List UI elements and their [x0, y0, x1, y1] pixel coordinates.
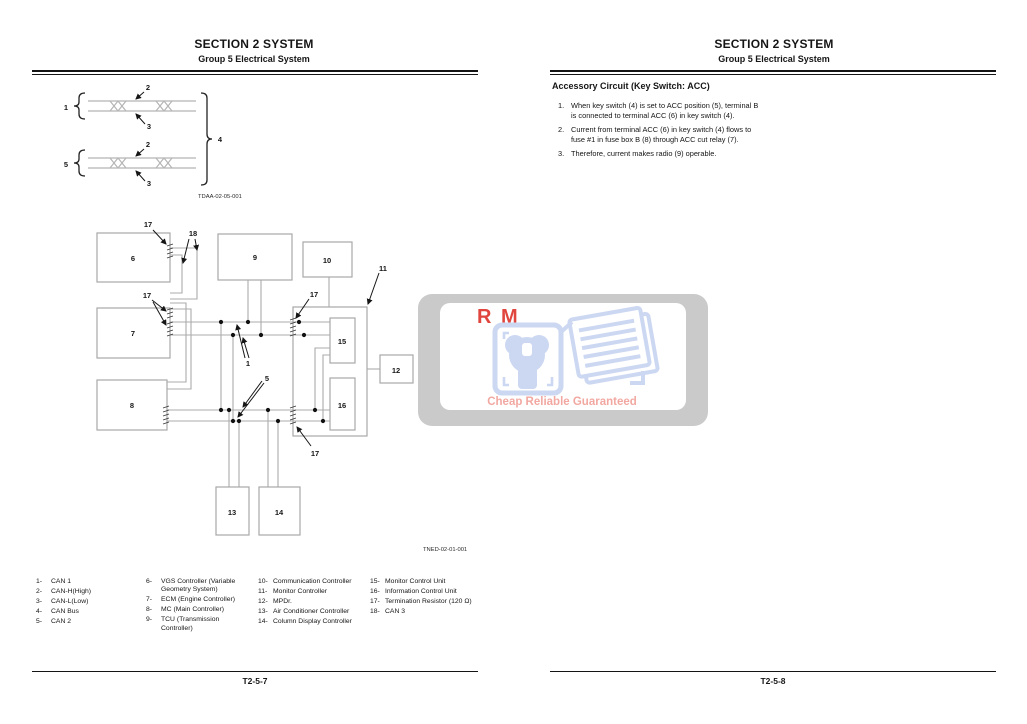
box-label-10: 10	[323, 256, 331, 265]
callout-4: 4	[218, 135, 223, 144]
legend-col-4: 15-Monitor Control Unit 16-Information C…	[370, 578, 478, 618]
legend-label: Communication Controller	[273, 578, 364, 586]
legend-label: CAN-L(Low)	[51, 598, 138, 606]
list-text: Current from terminal ACC (6) in key swi…	[571, 125, 763, 144]
legend-label: CAN 3	[385, 608, 478, 616]
brace-icon	[201, 93, 212, 185]
legend-item: 8-MC (Main Controller)	[146, 606, 252, 614]
legend-num: 10-	[258, 578, 273, 586]
legend-item: 18-CAN 3	[370, 608, 478, 616]
figure-code: TNED-02-01-001	[423, 547, 467, 553]
legend-num: 17-	[370, 598, 385, 606]
legend-num: 9-	[146, 616, 161, 633]
callout-1: 1	[246, 359, 250, 368]
legend-label: Monitor Control Unit	[385, 578, 478, 586]
footer-rule	[32, 671, 478, 672]
legend-num: 12-	[258, 598, 273, 606]
callout-1: 1	[64, 103, 68, 112]
twisted-pair-1	[88, 101, 196, 111]
legend-label: TCU (Transmission Controller)	[161, 616, 252, 633]
legend-item: 12-MPDr.	[258, 598, 364, 606]
callout-17: 17	[310, 290, 318, 299]
legend-item: 1-CAN 1	[36, 578, 138, 586]
watermark: R M	[418, 294, 708, 426]
figure-code: TDAA-02-05-001	[198, 194, 242, 200]
legend-item: 7-ECM (Engine Controller)	[146, 596, 252, 604]
legend-label: CAN-H(High)	[51, 588, 138, 596]
callout-11: 11	[379, 264, 387, 273]
legend-num: 14-	[258, 618, 273, 626]
header-rule	[550, 70, 996, 75]
legend-num: 8-	[146, 606, 161, 614]
callout-2: 2	[146, 83, 150, 92]
watermark-panel: R M	[440, 303, 686, 410]
group-subtitle: Group 5 Electrical System	[30, 54, 478, 64]
legend-label: ECM (Engine Controller)	[161, 596, 252, 604]
callout-17: 17	[143, 291, 151, 300]
legend-col-2: 6-VGS Controller (Variable Geometry Syst…	[146, 578, 252, 634]
legend-num: 3-	[36, 598, 51, 606]
legend-num: 7-	[146, 596, 161, 604]
legend-num: 13-	[258, 608, 273, 616]
legend-num: 16-	[370, 588, 385, 596]
legend-num: 4-	[36, 608, 51, 616]
brace-icon	[74, 93, 85, 119]
legend-item: 2-CAN-H(High)	[36, 588, 138, 596]
legend-label: CAN 1	[51, 578, 138, 586]
watermark-tagline: Cheap Reliable Guaranteed	[487, 396, 637, 408]
callout-3: 3	[147, 122, 151, 131]
box-label-16: 16	[338, 401, 346, 410]
left-page-header: SECTION 2 SYSTEM Group 5 Electrical Syst…	[30, 37, 478, 64]
list-number: 3.	[558, 149, 571, 159]
callout-2: 2	[146, 140, 150, 149]
legend-label: VGS Controller (Variable Geometry System…	[161, 578, 252, 595]
legend-item: 14-Column Display Controller	[258, 618, 364, 626]
watermark-brand-r: R	[477, 306, 492, 328]
legend-num: 5-	[36, 618, 51, 626]
legend-item: 4-CAN Bus	[36, 608, 138, 616]
twisted-pair-figure: 1 2 3 5 2 3 4 TDAA-02-05-001	[40, 80, 290, 205]
legend-item: 17-Termination Resistor (120 Ω)	[370, 598, 478, 606]
list-text: Therefore, current makes radio (9) opera…	[571, 149, 763, 159]
callout-5: 5	[64, 160, 68, 169]
right-page-header: SECTION 2 SYSTEM Group 5 Electrical Syst…	[550, 37, 998, 64]
box-label-7: 7	[131, 329, 135, 338]
section-title: SECTION 2 SYSTEM	[30, 37, 478, 51]
callout-5: 5	[265, 374, 269, 383]
legend-item: 13-Air Conditioner Controller	[258, 608, 364, 616]
legend-num: 2-	[36, 588, 51, 596]
box-label-9: 9	[253, 253, 257, 262]
callout-17: 17	[144, 220, 152, 229]
legend-item: 9-TCU (Transmission Controller)	[146, 616, 252, 633]
legend-label: Air Conditioner Controller	[273, 608, 364, 616]
callout-17: 17	[311, 449, 319, 458]
list-item: 3. Therefore, current makes radio (9) op…	[558, 149, 763, 159]
box-label-13: 13	[228, 508, 236, 517]
twisted-pair-2	[88, 158, 196, 168]
legend-col-1: 1-CAN 1 2-CAN-H(High) 3-CAN-L(Low) 4-CAN…	[36, 578, 138, 628]
book-icon	[560, 307, 658, 383]
box-label-6: 6	[131, 254, 135, 263]
legend-num: 15-	[370, 578, 385, 586]
legend-item: 6-VGS Controller (Variable Geometry Syst…	[146, 578, 252, 595]
brace-icon	[74, 150, 85, 176]
legend-label: Column Display Controller	[273, 618, 364, 626]
legend-item: 11-Monitor Controller	[258, 588, 364, 596]
legend-label: Information Control Unit	[385, 588, 478, 596]
list-item: 1. When key switch (4) is set to ACC pos…	[558, 101, 763, 120]
legend-label: CAN 2	[51, 618, 138, 626]
callout-3: 3	[147, 179, 151, 188]
legend-num: 6-	[146, 578, 161, 595]
legend-label: MPDr.	[273, 598, 364, 606]
box-label-15: 15	[338, 337, 346, 346]
legend-item: 3-CAN-L(Low)	[36, 598, 138, 606]
legend-label: Termination Resistor (120 Ω)	[385, 598, 478, 606]
wrench-icon	[495, 325, 561, 393]
legend-col-3: 10-Communication Controller 11-Monitor C…	[258, 578, 364, 628]
manual-spread: SECTION 2 SYSTEM Group 5 Electrical Syst…	[0, 0, 1027, 724]
instruction-list: 1. When key switch (4) is set to ACC pos…	[558, 101, 763, 164]
legend-item: 15-Monitor Control Unit	[370, 578, 478, 586]
list-text: When key switch (4) is set to ACC positi…	[571, 101, 763, 120]
list-number: 2.	[558, 125, 571, 144]
box-label-12: 12	[392, 366, 400, 375]
header-rule	[32, 70, 478, 75]
section-title: SECTION 2 SYSTEM	[550, 37, 998, 51]
footer-rule	[550, 671, 996, 672]
list-item: 2. Current from terminal ACC (6) in key …	[558, 125, 763, 144]
accessory-heading: Accessory Circuit (Key Switch: ACC)	[552, 81, 710, 91]
box-label-8: 8	[130, 401, 134, 410]
legend-item: 10-Communication Controller	[258, 578, 364, 586]
callout-18: 18	[189, 229, 197, 238]
group-subtitle: Group 5 Electrical System	[550, 54, 998, 64]
page-number: T2-5-8	[550, 676, 996, 686]
box-label-14: 14	[275, 508, 284, 517]
legend-label: MC (Main Controller)	[161, 606, 252, 614]
legend-label: Monitor Controller	[273, 588, 364, 596]
legend-num: 11-	[258, 588, 273, 596]
list-number: 1.	[558, 101, 571, 120]
legend-item: 5-CAN 2	[36, 618, 138, 626]
wrench-book-logo: R M	[440, 303, 686, 410]
legend-item: 16-Information Control Unit	[370, 588, 478, 596]
page-number: T2-5-7	[32, 676, 478, 686]
legend-label: CAN Bus	[51, 608, 138, 616]
legend-num: 18-	[370, 608, 385, 616]
legend-num: 1-	[36, 578, 51, 586]
